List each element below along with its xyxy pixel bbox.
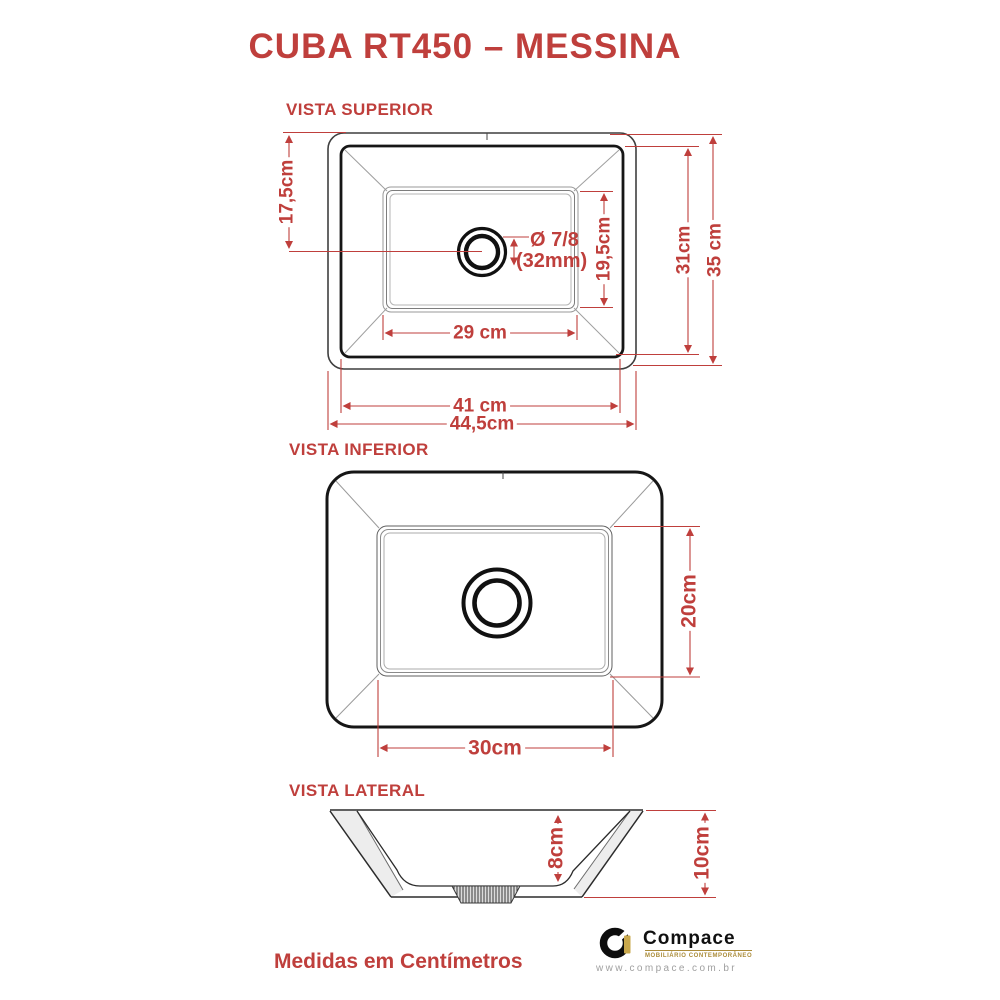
dim-drain-diameter-mm: (32mm) bbox=[516, 251, 587, 271]
lateral-view-label: VISTA LATERAL bbox=[289, 781, 425, 801]
brand-website: www.compace.com.br bbox=[596, 963, 737, 974]
dim-lateral-height: 10cm bbox=[691, 823, 714, 883]
dim-total-width: 44,5cm bbox=[447, 414, 517, 435]
diagram-page: CUBA RT450 – MESSINA VISTA SUPERIOR 17,5… bbox=[0, 0, 1000, 1000]
dim-basin-length: 19,5cm bbox=[594, 214, 615, 284]
compace-logo-icon bbox=[599, 925, 643, 965]
lateral-view-drawing bbox=[330, 810, 643, 903]
brand-name: Compace bbox=[643, 928, 736, 950]
brand-tagline: MOBILIÁRIO CONTEMPORÂNEO bbox=[645, 950, 752, 959]
page-title: CUBA RT450 – MESSINA bbox=[249, 27, 682, 67]
superior-view-label: VISTA SUPERIOR bbox=[286, 100, 433, 120]
brand-logo: Compace MOBILIÁRIO CONTEMPORÂNEO www.com… bbox=[596, 922, 756, 980]
dim-bowl-depth: 8cm bbox=[545, 824, 568, 872]
technical-drawing bbox=[0, 0, 1000, 1000]
dim-base-width: 30cm bbox=[465, 737, 525, 760]
dim-drain-diameter-inch: Ø 7/8 bbox=[530, 230, 579, 250]
dim-edge-to-drain: 17,5cm bbox=[277, 157, 298, 227]
units-note: Medidas em Centímetros bbox=[274, 950, 523, 974]
lateral-drain-fitting bbox=[452, 886, 520, 903]
inferior-view-label: VISTA INFERIOR bbox=[289, 440, 429, 460]
inferior-drain-inner-ring bbox=[475, 581, 520, 626]
dim-base-depth: 20cm bbox=[678, 571, 701, 631]
superior-dimension-lines bbox=[283, 133, 722, 431]
inferior-view-drawing bbox=[327, 472, 662, 727]
dim-total-height: 35 cm bbox=[705, 220, 726, 280]
dim-rim-height: 31cm bbox=[674, 223, 695, 278]
dim-basin-width: 29 cm bbox=[450, 323, 510, 344]
